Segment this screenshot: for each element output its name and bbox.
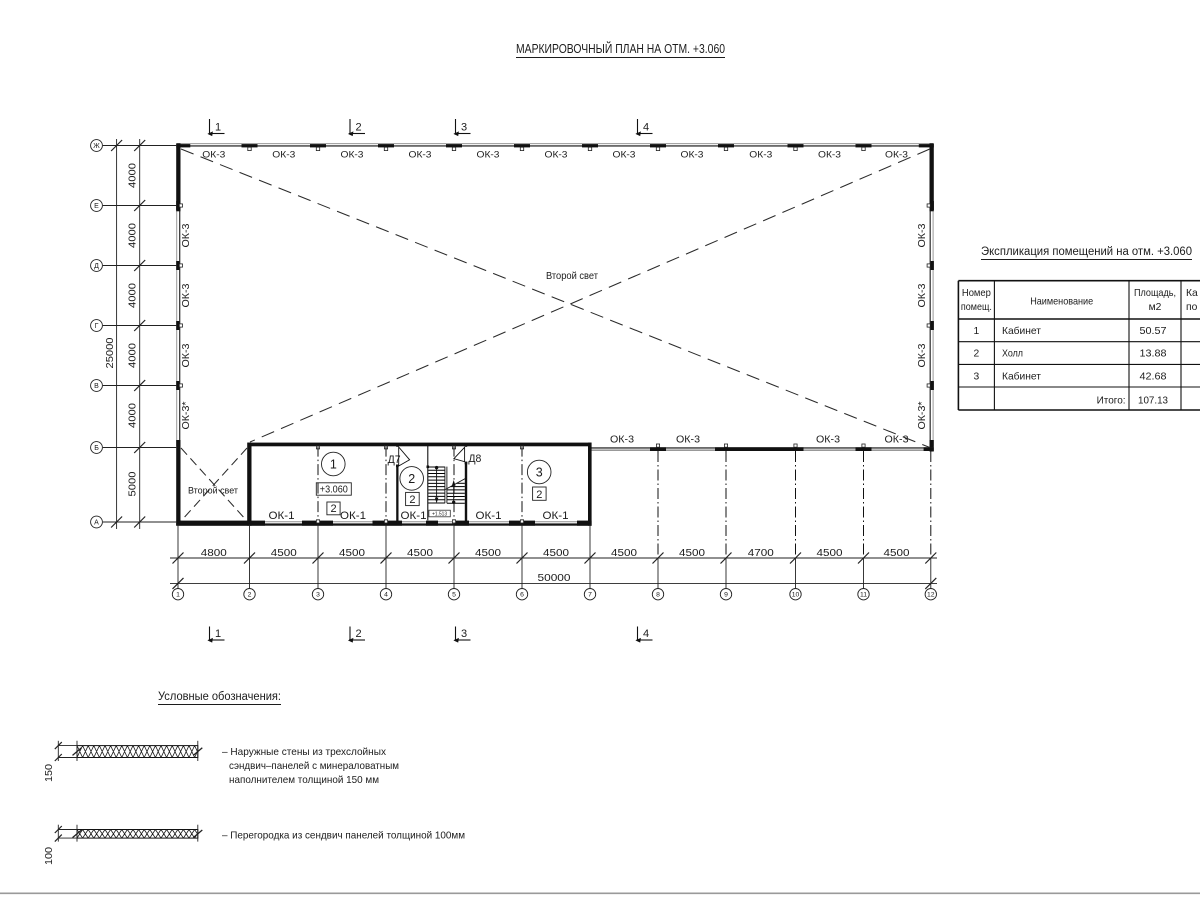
svg-text:2: 2	[408, 472, 415, 486]
svg-text:ОК-1: ОК-1	[401, 510, 427, 522]
svg-text:1: 1	[974, 326, 980, 337]
svg-text:ОК-3: ОК-3	[202, 150, 225, 161]
svg-text:2: 2	[355, 628, 361, 640]
svg-text:ОК-3: ОК-3	[545, 150, 568, 161]
svg-text:42.68: 42.68	[1140, 371, 1167, 382]
svg-text:Г: Г	[95, 323, 99, 330]
svg-text:4500: 4500	[475, 548, 502, 559]
svg-text:ОК-3: ОК-3	[610, 434, 634, 445]
svg-text:3: 3	[461, 121, 467, 133]
svg-text:4500: 4500	[339, 548, 366, 559]
svg-text:5000: 5000	[128, 471, 139, 496]
svg-text:Экспликация помещений на отм.: Экспликация помещений на отм. +3.060	[981, 246, 1192, 258]
svg-text:2: 2	[355, 121, 361, 133]
svg-text:2: 2	[536, 489, 542, 501]
svg-text:Д: Д	[94, 263, 99, 270]
svg-text:1: 1	[176, 592, 180, 599]
svg-text:50.57: 50.57	[1140, 326, 1167, 337]
svg-text:4500: 4500	[271, 548, 298, 559]
svg-text:Площадь,: Площадь,	[1134, 288, 1176, 299]
svg-text:50000: 50000	[538, 572, 571, 584]
svg-text:4: 4	[384, 592, 388, 599]
svg-text:ОК-3: ОК-3	[885, 434, 909, 445]
svg-text:Кабинет: Кабинет	[1002, 325, 1041, 337]
svg-text:Ж: Ж	[93, 143, 100, 150]
svg-text:ОК-3: ОК-3	[917, 343, 928, 367]
svg-text:В: В	[94, 383, 99, 390]
svg-text:Д7: Д7	[388, 454, 401, 466]
svg-text:4500: 4500	[543, 548, 570, 559]
svg-text:Кабинет: Кабинет	[1002, 370, 1041, 382]
svg-text:А: А	[94, 520, 99, 527]
svg-text:наполнителем толщиной 150 мм: наполнителем толщиной 150 мм	[229, 775, 379, 786]
svg-text:ОК-1: ОК-1	[340, 510, 366, 522]
svg-text:ОК-1: ОК-1	[543, 510, 569, 522]
svg-text:по: по	[1186, 302, 1198, 313]
svg-text:4500: 4500	[884, 548, 911, 559]
svg-text:25000: 25000	[105, 337, 116, 368]
svg-text:Б: Б	[94, 445, 99, 452]
svg-text:ОК-3: ОК-3	[681, 150, 704, 161]
svg-text:4000: 4000	[128, 163, 139, 188]
svg-text:4: 4	[643, 628, 649, 640]
svg-text:2: 2	[330, 503, 336, 515]
svg-text:2: 2	[248, 592, 252, 599]
svg-text:Итого:: Итого:	[1097, 396, 1126, 407]
svg-text:4500: 4500	[817, 548, 844, 559]
svg-text:4500: 4500	[679, 548, 706, 559]
svg-text:150: 150	[44, 764, 55, 782]
svg-text:Номер: Номер	[962, 288, 991, 299]
svg-text:4000: 4000	[128, 403, 139, 428]
svg-text:3: 3	[974, 371, 980, 382]
svg-text:Д8: Д8	[468, 453, 481, 465]
svg-text:8: 8	[656, 592, 660, 599]
svg-text:Второй свет: Второй свет	[188, 486, 239, 497]
svg-text:4000: 4000	[128, 343, 139, 368]
svg-text:МАРКИРОВОЧНЫЙ ПЛАН НА ОТМ. +3.: МАРКИРОВОЧНЫЙ ПЛАН НА ОТМ. +3.060	[516, 41, 725, 56]
svg-text:12: 12	[927, 592, 935, 599]
svg-text:3: 3	[316, 592, 320, 599]
svg-text:ОК-3: ОК-3	[272, 150, 295, 161]
svg-text:Ка: Ка	[1186, 288, 1198, 299]
svg-text:ОК-3: ОК-3	[676, 434, 700, 445]
svg-text:ОК-3: ОК-3	[917, 283, 928, 307]
svg-text:1: 1	[215, 628, 221, 640]
svg-text:3: 3	[461, 628, 467, 640]
svg-text:ОК-3: ОК-3	[341, 150, 364, 161]
svg-text:4800: 4800	[201, 548, 228, 559]
svg-text:ОК-3: ОК-3	[409, 150, 432, 161]
svg-text:ОК-3: ОК-3	[917, 223, 928, 247]
svg-text:4000: 4000	[128, 283, 139, 308]
svg-text:Е: Е	[94, 203, 99, 210]
svg-text:+3.060: +3.060	[320, 484, 348, 495]
svg-text:ОК-3: ОК-3	[816, 434, 840, 445]
svg-text:4500: 4500	[407, 548, 434, 559]
svg-text:4000: 4000	[128, 223, 139, 248]
svg-text:4700: 4700	[748, 548, 775, 559]
svg-text:ОК-3*: ОК-3*	[181, 401, 192, 429]
svg-text:100: 100	[44, 847, 55, 865]
svg-text:Условные обозначения:: Условные обозначения:	[158, 691, 281, 703]
svg-text:Второй свет: Второй свет	[546, 271, 598, 282]
svg-text:ОК-3: ОК-3	[613, 150, 636, 161]
svg-text:ОК-3: ОК-3	[477, 150, 500, 161]
svg-text:+1.513: +1.513	[432, 511, 447, 517]
svg-text:5: 5	[452, 592, 456, 599]
svg-text:– Наружные стены из трехслойны: – Наружные стены из трехслойных	[222, 747, 387, 758]
svg-text:6: 6	[520, 592, 524, 599]
svg-text:4500: 4500	[611, 548, 638, 559]
svg-text:7: 7	[588, 592, 592, 599]
svg-text:ОК-3*: ОК-3*	[917, 401, 928, 429]
svg-text:Холл: Холл	[1002, 349, 1023, 360]
svg-text:ОК-1: ОК-1	[476, 510, 502, 522]
svg-text:2: 2	[409, 494, 415, 506]
svg-text:ОК-3: ОК-3	[818, 150, 841, 161]
svg-text:10: 10	[792, 592, 800, 599]
svg-text:13.88: 13.88	[1140, 349, 1167, 360]
svg-text:м2: м2	[1149, 302, 1162, 313]
svg-text:1: 1	[215, 121, 221, 133]
svg-text:помещ.: помещ.	[961, 302, 992, 313]
svg-text:11: 11	[860, 592, 867, 599]
svg-text:4: 4	[643, 121, 649, 133]
svg-text:2: 2	[974, 349, 980, 360]
svg-text:ОК-3: ОК-3	[181, 343, 192, 367]
svg-text:ОК-3: ОК-3	[885, 150, 908, 161]
svg-text:1: 1	[330, 458, 337, 472]
svg-text:ОК-3: ОК-3	[181, 283, 192, 307]
svg-text:ОК-1: ОК-1	[269, 510, 295, 522]
svg-text:3: 3	[536, 466, 543, 480]
svg-text:сэндвич–панелей с минераловатн: сэндвич–панелей с минераловатным	[229, 761, 399, 772]
svg-text:9: 9	[724, 592, 728, 599]
svg-text:Наименование: Наименование	[1030, 297, 1093, 308]
svg-text:– Перегородка из сендвич панел: – Перегородка из сендвич панелей толщино…	[222, 831, 465, 842]
svg-text:ОК-3: ОК-3	[181, 223, 192, 247]
svg-text:ОК-3: ОК-3	[749, 150, 772, 161]
svg-text:107.13: 107.13	[1138, 396, 1168, 407]
